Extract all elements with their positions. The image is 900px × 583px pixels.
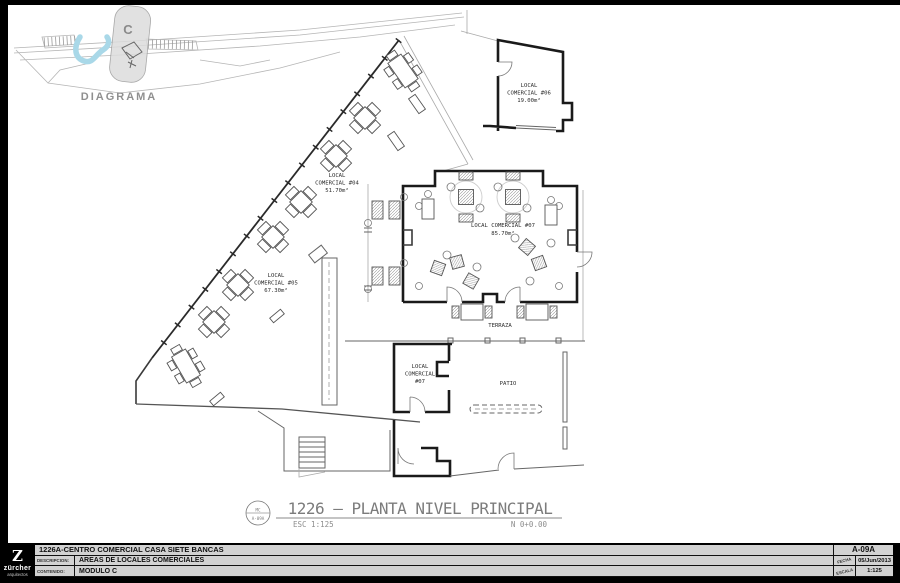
module-c-letter: C [123, 22, 133, 37]
drawing-sheet: C DIAGRAMA LOCAL COMERCIAL #04 51.70m² [0, 0, 900, 583]
descripcion-value: AREAS DE LOCALES COMERCIALES [74, 556, 833, 566]
title-block-row-descripcion: DESCRIPCION: AREAS DE LOCALES COMERCIALE… [35, 556, 893, 567]
svg-text:67.30m²: 67.30m² [264, 287, 288, 294]
svg-text:51.70m²: 51.70m² [325, 187, 349, 194]
escala-value: 1:125 [855, 566, 893, 576]
contenido-value: MODULO C [74, 566, 833, 576]
sheet-number: A-09A [833, 545, 893, 555]
plan-title: 1226 — PLANTA NIVEL PRINCIPAL [288, 499, 553, 518]
descripcion-label: DESCRIPCION: [35, 556, 74, 566]
floor-plan-canvas: C DIAGRAMA LOCAL COMERCIAL #04 51.70m² [0, 0, 900, 543]
svg-text:LOCAL: LOCAL [329, 173, 346, 179]
svg-text:19.00m²: 19.00m² [517, 97, 541, 104]
svg-text:COMERCIAL #06: COMERCIAL #06 [507, 91, 551, 97]
reference-bubble-bottom: A-09A [252, 516, 265, 521]
fecha-value: 05/Jun/2013 [855, 556, 893, 566]
title-block-row-contenido: CONTENIDO: MODULO C ESCALA 1:125 [35, 566, 893, 577]
escala-label-text: ESCALA [836, 567, 854, 576]
svg-text:COMERCIAL: COMERCIAL [405, 372, 436, 378]
contenido-label: CONTENIDO: [35, 566, 74, 576]
title-block: 1226A-CENTRO COMERCIAL CASA SIETE BANCAS… [0, 543, 900, 583]
architect-logo: Z zürcher arquitectos [0, 543, 35, 583]
escala-label: ESCALA [833, 566, 855, 576]
terraza-label: TERRAZA [488, 323, 512, 329]
project-title: 1226A-CENTRO COMERCIAL CASA SIETE BANCAS [35, 545, 833, 555]
svg-text:COMERCIAL #05: COMERCIAL #05 [254, 281, 298, 287]
svg-text:85.70m²: 85.70m² [491, 230, 515, 237]
frame-top [0, 0, 900, 5]
svg-text:#07: #07 [415, 379, 425, 385]
svg-text:LOCAL: LOCAL [521, 83, 538, 89]
logo-mark: Z [12, 549, 23, 564]
level-note: N 0+0.00 [511, 520, 548, 529]
fecha-label: FECHA [833, 556, 855, 566]
svg-text:LOCAL: LOCAL [412, 364, 429, 370]
logo-name: zürcher [4, 565, 31, 572]
logo-subtitle: arquitectos [7, 573, 27, 577]
fecha-label-text: FECHA [837, 556, 852, 564]
scale-note: ESC 1:125 [293, 520, 334, 529]
frame-left [0, 0, 8, 543]
title-block-row-project: 1226A-CENTRO COMERCIAL CASA SIETE BANCAS… [35, 545, 893, 556]
svg-text:LOCAL COMERCIAL #07: LOCAL COMERCIAL #07 [471, 223, 535, 229]
title-block-bottom-border [0, 577, 900, 583]
diagram-label: DIAGRAMA [81, 91, 158, 103]
svg-text:LOCAL: LOCAL [268, 273, 285, 279]
reference-bubble-top: MC [255, 508, 261, 513]
svg-text:COMERCIAL #04: COMERCIAL #04 [315, 181, 359, 187]
patio-label: PATIO [500, 381, 517, 387]
title-block-rows: 1226A-CENTRO COMERCIAL CASA SIETE BANCAS… [35, 545, 893, 577]
